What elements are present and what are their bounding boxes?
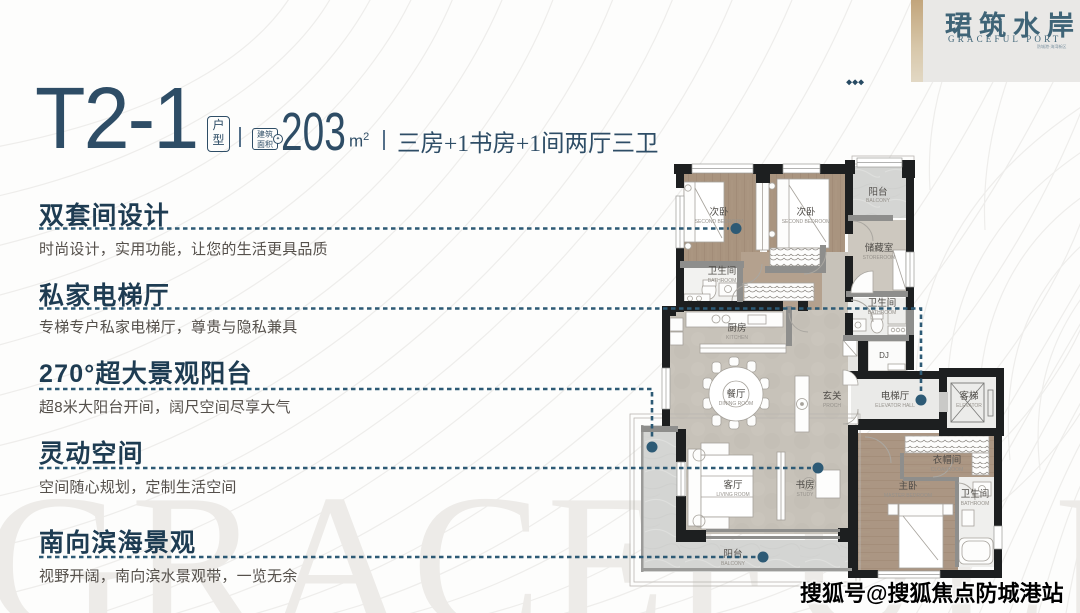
svg-text:阳台: 阳台 <box>723 548 742 560</box>
svg-text:PROCH: PROCH <box>823 403 841 409</box>
svg-text:LIVING ROOM: LIVING ROOM <box>716 492 749 498</box>
svg-text:BATHROOM: BATHROOM <box>961 501 990 507</box>
svg-text:书房: 书房 <box>795 479 814 491</box>
svg-text:BALCONY: BALCONY <box>866 198 891 204</box>
svg-text:电梯厅: 电梯厅 <box>881 390 910 402</box>
svg-text:BALCONY: BALCONY <box>721 561 746 567</box>
svg-text:CLOAKROOM: CLOAKROOM <box>931 467 964 473</box>
svg-text:次卧: 次卧 <box>796 206 816 218</box>
svg-text:玄关: 玄关 <box>822 390 842 402</box>
svg-text:STOREROOM: STOREROOM <box>863 255 896 261</box>
svg-text:MASTER BEDROOM: MASTER BEDROOM <box>884 493 932 499</box>
svg-text:KITCHEN: KITCHEN <box>726 335 748 341</box>
svg-text:衣帽间: 衣帽间 <box>933 454 962 466</box>
svg-text:储藏室: 储藏室 <box>865 242 894 254</box>
svg-text:主卧: 主卧 <box>898 480 918 492</box>
svg-text:DJ: DJ <box>879 351 889 360</box>
svg-text:客厅: 客厅 <box>723 479 743 491</box>
svg-text:卫生间: 卫生间 <box>961 488 990 500</box>
svg-text:STUDY: STUDY <box>797 492 815 498</box>
svg-text:BATHROOM: BATHROOM <box>708 278 737 284</box>
svg-text:SECOND BEDROOM: SECOND BEDROOM <box>782 219 831 225</box>
svg-text:ELEVATOR: ELEVATOR <box>956 403 982 409</box>
svg-text:次卧: 次卧 <box>709 206 729 218</box>
svg-text:BATHROOM: BATHROOM <box>868 310 897 316</box>
svg-text:ELEVATOR HALL: ELEVATOR HALL <box>875 403 915 409</box>
svg-text:DINING ROOM: DINING ROOM <box>719 401 753 407</box>
svg-text:卫生间: 卫生间 <box>708 265 737 277</box>
svg-text:阳台: 阳台 <box>868 186 887 198</box>
svg-text:厨房: 厨房 <box>727 322 746 334</box>
svg-text:客梯: 客梯 <box>959 390 979 402</box>
svg-text:餐厅: 餐厅 <box>726 388 746 400</box>
